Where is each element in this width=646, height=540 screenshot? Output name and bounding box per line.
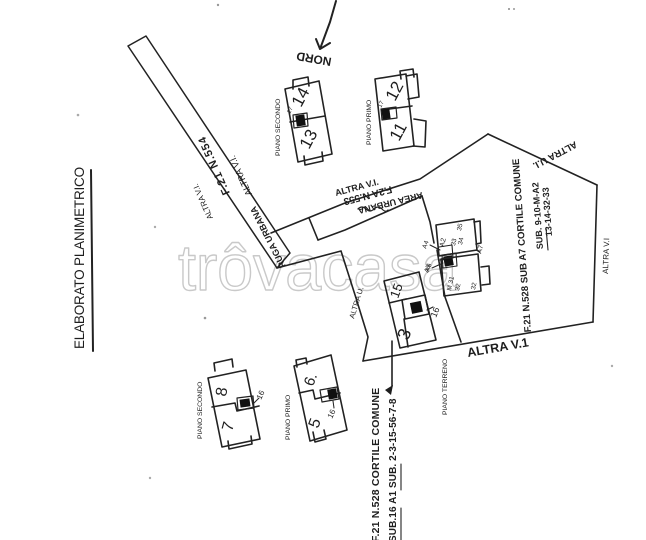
svg-text:13-14-32-33: 13-14-32-33 bbox=[541, 187, 554, 237]
svg-text:16: 16 bbox=[255, 388, 267, 400]
svg-text:ALTRA V.I.: ALTRA V.I. bbox=[191, 182, 215, 221]
svg-text:12: 12 bbox=[382, 78, 408, 104]
svg-text:5: 5 bbox=[306, 416, 325, 430]
svg-text:32: 32 bbox=[470, 282, 478, 291]
svg-text:13: 13 bbox=[296, 126, 322, 152]
svg-text:A7: A7 bbox=[476, 244, 485, 254]
svg-text:SUB.16 A1 SUB. 2-3-15-56-7-8: SUB.16 A1 SUB. 2-3-15-56-7-8 bbox=[388, 398, 399, 540]
svg-text:PIANO TERRENO: PIANO TERRENO bbox=[442, 359, 449, 415]
svg-text:17: 17 bbox=[377, 100, 386, 109]
svg-text:F.21 N.528 CORTILE COMUNE: F.21 N.528 CORTILE COMUNE bbox=[370, 388, 382, 540]
svg-text:F.21 N.554: F.21 N.554 bbox=[196, 134, 233, 197]
svg-text:7: 7 bbox=[219, 420, 238, 433]
svg-text:PIANO SECONDO: PIANO SECONDO bbox=[275, 99, 282, 156]
svg-text:PIANO SECONDO: PIANO SECONDO bbox=[197, 382, 204, 439]
svg-text:32: 32 bbox=[454, 283, 462, 292]
svg-text:11: 11 bbox=[386, 119, 411, 144]
svg-text:ELABORATO PLANIMETRICO: ELABORATO PLANIMETRICO bbox=[72, 167, 87, 349]
svg-text:trôvacasa: trôvacasa bbox=[178, 231, 458, 304]
svg-text:6.: 6. bbox=[301, 371, 321, 389]
svg-text:PIANO PRIMO: PIANO PRIMO bbox=[366, 100, 373, 145]
svg-text:8: 8 bbox=[213, 386, 231, 398]
svg-text:16: 16 bbox=[326, 407, 338, 419]
svg-text:3: 3 bbox=[393, 326, 415, 343]
svg-text:ALTRA V.I: ALTRA V.I bbox=[601, 238, 611, 274]
svg-text:34: 34 bbox=[457, 237, 465, 246]
svg-text:ALTRA V.1: ALTRA V.1 bbox=[466, 335, 530, 360]
svg-text:NORD: NORD bbox=[295, 49, 333, 69]
svg-text:35: 35 bbox=[456, 223, 464, 232]
svg-text:PIANO PRIMO: PIANO PRIMO bbox=[285, 395, 292, 440]
